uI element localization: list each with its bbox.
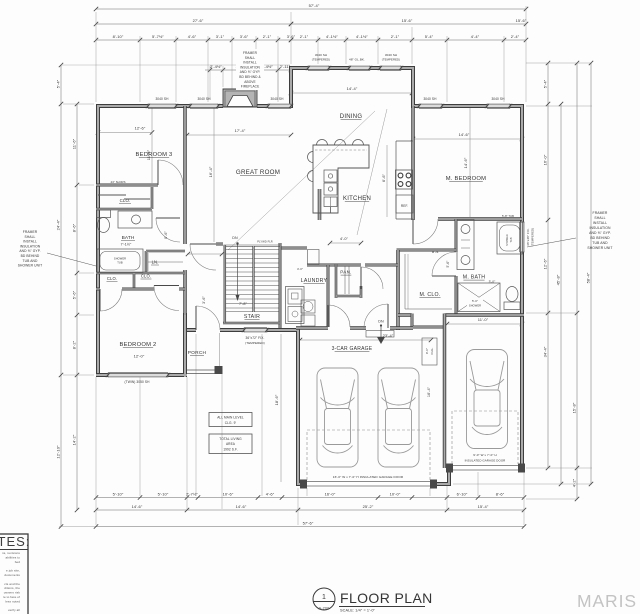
svg-text:BATH: BATH [122,235,135,241]
svg-text:less noted: less noted [5,599,20,603]
svg-text:MARIS: MARIS [577,591,637,611]
svg-text:(TEMPERED): (TEMPERED) [245,341,265,345]
svg-text:4'-2": 4'-2" [571,478,576,487]
svg-text:24'-4": 24'-4" [55,219,60,230]
svg-text:4'-0": 4'-0" [340,237,349,241]
svg-text:5'-7½": 5'-7½" [152,34,164,39]
svg-text:10'-0": 10'-0" [390,492,401,497]
svg-text:3'-1": 3'-1" [216,34,225,39]
svg-text:CLO.: CLO. [120,198,131,203]
svg-text:2'-1": 2'-1" [263,34,272,39]
svg-text:17'-4": 17'-4" [235,128,246,133]
svg-text:INSULATION: INSULATION [589,226,611,230]
svg-text:REF.: REF. [401,204,408,208]
svg-text:DN: DN [378,320,384,324]
svg-text:BD BEHIND: BD BEHIND [590,236,610,240]
svg-text:(TWIN) 3050 SH: (TWIN) 3050 SH [125,380,151,384]
svg-text:KITCHEN: KITCHEN [343,196,371,202]
svg-text:LN.: LN. [152,260,159,265]
svg-text:8'-10": 8'-10" [113,34,124,39]
svg-text:SHOWER: SHOWER [469,304,481,308]
svg-text:16'-0": 16'-0" [542,154,547,165]
svg-text:4'-1½": 4'-1½" [356,34,368,39]
svg-text:2'-1": 2'-1" [300,34,309,39]
svg-text:SHOWER: SHOWER [506,234,509,246]
svg-text:34'-4": 34'-4" [542,346,547,357]
svg-text:58'-4": 58'-4" [585,272,590,283]
svg-text:14'-6": 14'-6" [236,504,247,509]
svg-text:INSTALL: INSTALL [593,221,607,225]
svg-text:12'-10": 12'-10" [55,445,60,459]
svg-text:abilities to: abilities to [5,555,20,559]
svg-text:re to face of: re to face of [3,595,20,599]
svg-text:6'-10": 6'-10" [457,492,468,497]
svg-text:9'-0" W x 7'-0" H: 9'-0" W x 7'-0" H [473,453,496,457]
svg-text:15'-8": 15'-8" [571,402,576,413]
svg-text:ALL MAIN LEVEL: ALL MAIN LEVEL [217,416,244,420]
svg-text:ABOVE: ABOVE [244,80,255,84]
svg-text:SHALL: SHALL [594,216,605,220]
svg-text:4'-1½": 4'-1½" [326,34,338,39]
svg-text:48" GL.BK.: 48" GL.BK. [349,58,365,62]
svg-text:8'-2": 8'-2" [71,340,76,349]
svg-text:(TEMPERED): (TEMPERED) [312,58,330,62]
svg-text:3040 SH: 3040 SH [315,53,327,57]
svg-text:CLO.: CLO. [107,276,117,281]
svg-text:5'-8" TUB: 5'-8" TUB [502,214,514,218]
svg-text:3'-6": 3'-6" [287,34,296,39]
svg-text:M. BEDROOM: M. BEDROOM [446,176,487,182]
svg-text:SHALL: SHALL [245,56,256,60]
svg-text:5'-0": 5'-0" [472,299,478,303]
svg-text:FRAMER: FRAMER [23,230,38,234]
svg-text:cts and the: cts and the [4,582,20,586]
svg-text:8'-6": 8'-6" [496,492,505,497]
svg-text:7'-8": 7'-8" [239,302,248,306]
svg-text:AND ⅝" GYP.: AND ⅝" GYP. [19,249,40,253]
svg-text:3'-6": 3'-6" [202,296,206,304]
svg-text:3040 SH: 3040 SH [423,97,437,101]
svg-text:(TEMPERED): (TEMPERED) [531,228,535,246]
svg-text:36"x72" FIX.: 36"x72" FIX. [246,336,265,340]
svg-text:2'-4": 2'-4" [511,34,520,39]
svg-text:2'-1": 2'-1" [391,34,400,39]
svg-text:10'-6": 10'-6" [223,492,234,497]
svg-text:CLO.: CLO. [141,274,151,279]
svg-text:12'-6": 12'-6" [542,258,547,269]
svg-text:INSTALL: INSTALL [243,61,257,65]
svg-text:INSTALL: INSTALL [23,240,37,244]
svg-text:5'-6": 5'-6" [71,290,76,299]
svg-text:16'-0" W x 7'-0" H INSULATED: 16'-0" W x 7'-0" H INSULATED GARAGE DOOR [333,475,404,479]
svg-text:NOTES:: NOTES: [0,534,30,549]
svg-text:BEDROOM 3: BEDROOM 3 [135,152,172,158]
svg-text:e job site,: e job site, [6,569,20,573]
svg-text:1: 1 [322,594,326,601]
svg-text:11'-6": 11'-6" [71,138,76,149]
svg-text:3040 SH: 3040 SH [491,97,505,101]
svg-text:TUB AND: TUB AND [23,259,39,263]
svg-text:LAUNDRY: LAUNDRY [301,278,328,284]
svg-text:3040 SH: 3040 SH [270,97,284,101]
svg-text:3040 SH: 3040 SH [385,53,397,57]
svg-text:(TEMPERED): (TEMPERED) [382,58,400,62]
svg-text:TUB: TUB [510,237,513,242]
svg-text:16'-4": 16'-4" [208,166,213,177]
svg-text:INSULATION: INSULATION [240,65,260,69]
svg-text:15'-6": 15'-6" [516,18,527,23]
svg-text:STAIR: STAIR [244,314,260,320]
svg-text:46"x48" FIX.: 46"x48" FIX. [526,228,530,246]
svg-text:45'-8": 45'-8" [555,274,560,285]
svg-text:CLG.: CLG. [430,347,434,354]
svg-text:A-200: A-200 [319,607,330,611]
svg-text:9'-0": 9'-0" [425,348,429,354]
svg-text:ns, revisions: ns, revisions [2,551,20,555]
svg-text:SHOWER: SHOWER [114,257,126,261]
svg-text:3'-6": 3'-6" [240,34,249,39]
svg-text:5'-10": 5'-10" [113,492,124,497]
svg-text:documents: documents [4,573,20,577]
svg-text:4'-0": 4'-0" [297,267,303,271]
svg-text:INSULATION: INSULATION [20,244,41,248]
svg-text:AREA: AREA [226,442,236,446]
svg-text:14'-6": 14'-6" [463,157,468,168]
svg-text:DINING: DINING [340,114,363,120]
svg-text:14'-6": 14'-6" [459,132,470,137]
svg-text:TOTAL LIVING: TOTAL LIVING [219,437,242,441]
svg-text:PORCH: PORCH [188,350,207,356]
svg-text:AND ⅝" GYP.: AND ⅝" GYP. [240,70,261,74]
svg-text:5'-4": 5'-4" [542,79,547,88]
svg-text:14'-6": 14'-6" [132,504,143,509]
svg-text:GREAT ROOM: GREAT ROOM [236,169,280,176]
svg-text:M. BATH: M. BATH [463,275,485,281]
svg-text:FRAMER: FRAMER [243,51,258,55]
svg-text:AND ⅝" GYP.: AND ⅝" GYP. [589,231,611,235]
svg-text:3-CAR GARAGE: 3-CAR GARAGE [332,346,373,352]
svg-text:5'-6": 5'-6" [446,261,450,268]
svg-text:44" SLDRS: 44" SLDRS [110,180,125,184]
svg-text:PAN.: PAN. [340,270,351,275]
svg-text:4'-6": 4'-6" [188,34,197,39]
svg-text:15'-6": 15'-6" [402,18,413,23]
svg-text:57'-4": 57'-4" [309,3,320,8]
svg-text:4'-4": 4'-4" [471,34,480,39]
svg-text:INSULATED GARAGE DOOR: INSULATED GARAGE DOOR [465,459,506,463]
svg-text:12'-6": 12'-6" [135,126,146,131]
svg-text:FLOOR PLAN: FLOOR PLAN [340,590,433,606]
svg-text:57'-6": 57'-6" [303,521,314,526]
svg-text:5'-4": 5'-4" [425,34,434,39]
svg-text:16'-4": 16'-4" [427,386,431,397]
svg-text:BEDROOM 2: BEDROOM 2 [119,342,156,348]
svg-text:18'-6": 18'-6" [274,394,279,405]
svg-text:ditions, the: ditions, the [4,586,20,590]
svg-text:3040 SH: 3040 SH [155,97,169,101]
svg-text:16'-0": 16'-0" [325,492,336,497]
svg-text:12'-0": 12'-0" [134,354,145,359]
svg-text:11'-0": 11'-0" [478,317,489,322]
svg-text:M. CLO.: M. CLO. [419,292,440,298]
svg-text:SHALL: SHALL [25,235,36,239]
svg-text:3'-0": 3'-0" [489,280,496,284]
svg-text:SCALE: 1/4" = 1'-0": SCALE: 1/4" = 1'-0" [340,609,376,613]
svg-text:TUB AND: TUB AND [592,241,608,245]
svg-text:27'-6": 27'-6" [193,18,204,23]
svg-text:3040 SH: 3040 SH [197,97,211,101]
svg-text:PLYWD FLR: PLYWD FLR [257,240,273,244]
svg-text:bed: bed [15,560,21,564]
svg-text:2'-7½": 2'-7½" [186,492,198,497]
svg-text:5'-10": 5'-10" [158,492,169,497]
svg-text:owners risk: owners risk [4,591,21,595]
svg-text:BD BEHIND &: BD BEHIND & [239,75,261,79]
svg-text:CLG. 9': CLG. 9' [225,421,237,425]
svg-text:DN: DN [232,236,238,240]
svg-text:5'-4": 5'-4" [55,79,60,88]
svg-text:SHOWER UNIT: SHOWER UNIT [587,246,612,250]
svg-text:14'-4": 14'-4" [347,86,358,91]
svg-text:6'-6": 6'-6" [382,173,386,182]
svg-text:4'-6": 4'-6" [266,492,275,497]
svg-text:7'-1½": 7'-1½" [121,243,132,247]
svg-text:1992 S.F.: 1992 S.F. [223,448,237,452]
svg-text:8'-6": 8'-6" [71,223,76,232]
svg-text:TUB: TUB [117,261,123,265]
svg-text:14'-2": 14'-2" [71,434,76,445]
svg-text:SHOWER UNIT: SHOWER UNIT [18,264,43,268]
svg-text:FIREPLACE: FIREPLACE [241,85,260,89]
svg-text:BD BEHIND: BD BEHIND [21,254,40,258]
svg-text:25'-2": 25'-2" [363,504,374,509]
svg-text:FRAMER: FRAMER [593,211,608,215]
svg-text:15'-4": 15'-4" [478,504,489,509]
svg-text:verify all: verify all [8,608,20,612]
